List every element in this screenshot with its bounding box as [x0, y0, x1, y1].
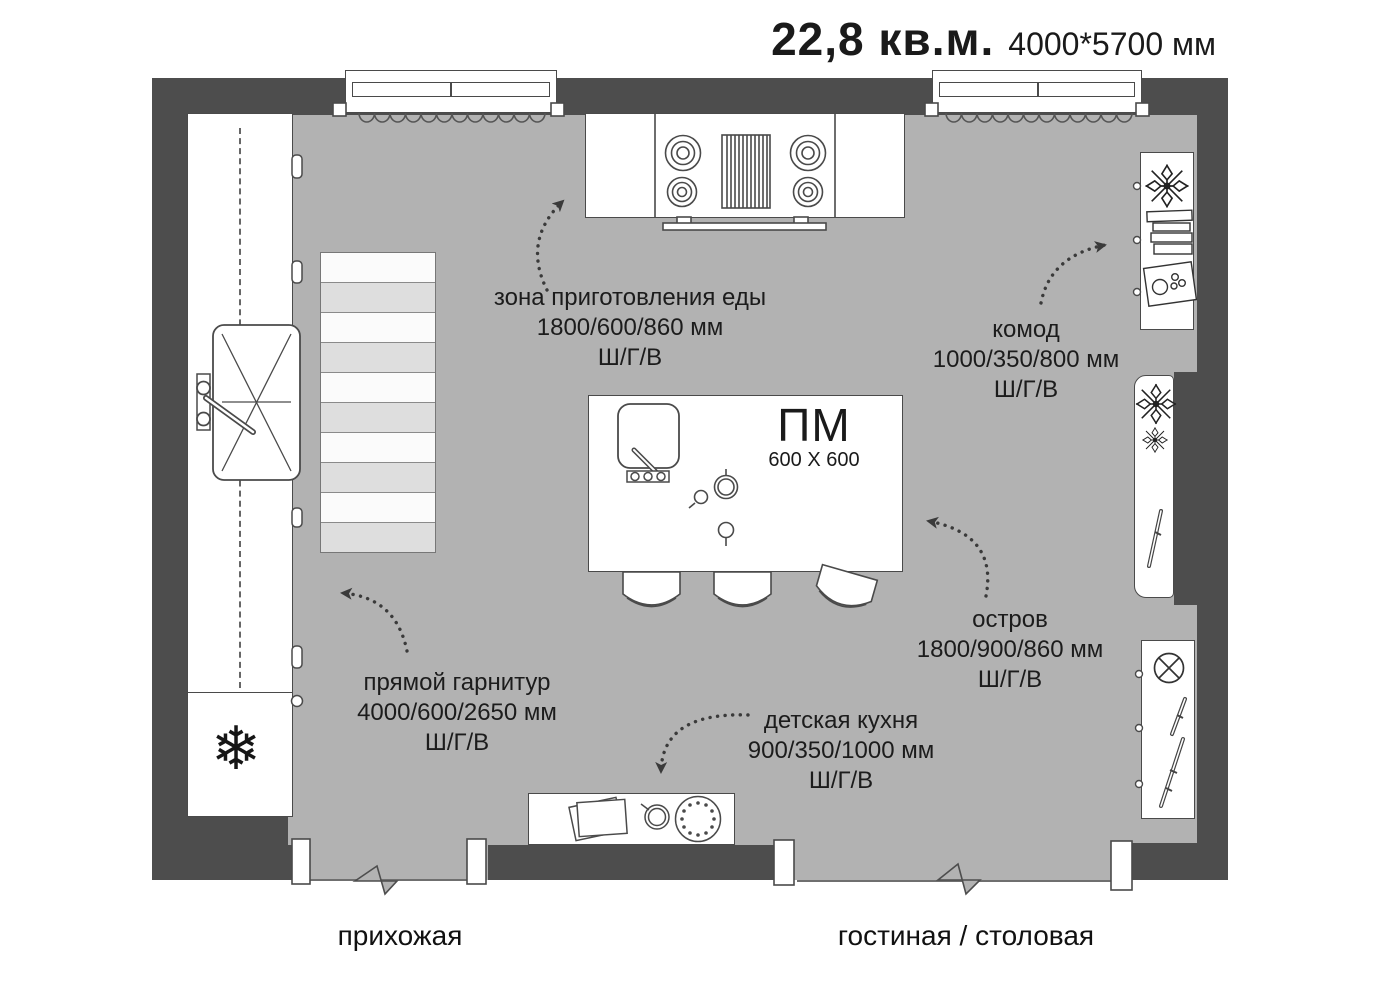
dresser-legend: Ш/Г/В — [886, 375, 1166, 405]
stool-icon — [623, 572, 680, 607]
burner-icon — [791, 136, 826, 171]
window-jamb-icon — [333, 103, 346, 116]
books-icon — [1147, 210, 1192, 254]
lamp-cross-icon — [1155, 654, 1184, 683]
oven-handle-icon — [663, 217, 826, 230]
kids-kitchen-size: 900/350/1000 мм — [691, 736, 991, 766]
island-size: 1800/900/860 мм — [865, 635, 1155, 665]
cup-icon — [689, 491, 708, 509]
kids-kitchen-name: детская кухня — [691, 706, 991, 736]
room-label-living-dining: гостиная / столовая — [766, 920, 1166, 952]
arrow-island — [928, 521, 988, 596]
opening-edges — [300, 880, 1114, 881]
label-cooking-zone: зона приготовления еды 1800/600/860 мм Ш… — [455, 283, 805, 373]
kids-kitchen-legend: Ш/Г/В — [691, 766, 991, 796]
decor-branch-icon — [1149, 511, 1161, 566]
arrow-cooking-zone — [538, 201, 563, 290]
toy-pot-icon — [641, 804, 669, 829]
dresser-details — [1134, 165, 1197, 307]
grill-icon — [722, 135, 770, 208]
pot-icon — [715, 469, 738, 499]
arrow-dresser — [1041, 245, 1105, 303]
decor-branch-icon — [1161, 739, 1183, 806]
dishwasher-abbr: ПМ — [744, 401, 884, 449]
plant-icon — [1146, 165, 1189, 208]
burner-icon — [668, 178, 697, 207]
burner-icon — [794, 178, 823, 207]
island-details — [618, 404, 738, 546]
arrow-straight-set — [342, 593, 407, 651]
window-jamb-icon — [1136, 103, 1149, 116]
decor-branch-icon — [1172, 699, 1185, 734]
stove-details — [655, 114, 835, 230]
burner-icon — [666, 136, 701, 171]
dishwasher-size: 600 X 600 — [744, 449, 884, 471]
straight-set-legend: Ш/Г/В — [307, 728, 607, 758]
window-jamb-icon — [925, 103, 938, 116]
island-sink-icon — [618, 404, 679, 468]
curtain-icons — [359, 113, 1132, 122]
island-legend: Ш/Г/В — [865, 665, 1155, 695]
label-island: остров 1800/900/860 мм Ш/Г/В — [865, 605, 1155, 695]
counter-sink-icon — [197, 325, 300, 480]
curtain-left-icon — [359, 113, 545, 122]
small-plant-icon — [1142, 427, 1167, 452]
floor-plan-canvas: ❄ — [0, 0, 1378, 1000]
plan-dimensions: 4000*5700 мм — [1008, 26, 1216, 62]
dresser-size: 1000/350/800 мм — [886, 345, 1166, 375]
plate-icon — [676, 797, 721, 842]
tray-with-cups-icon — [1144, 262, 1197, 306]
label-kids-kitchen: детская кухня 900/350/1000 мм Ш/Г/В — [691, 706, 991, 796]
island-name: остров — [865, 605, 1155, 635]
island-stools — [623, 565, 877, 614]
zigzag-living-icon — [938, 864, 980, 894]
plan-area: 22,8 кв.м. — [771, 13, 994, 65]
straight-set-name: прямой гарнитур — [307, 668, 607, 698]
console-details — [1136, 384, 1176, 566]
kids-kitchen-details — [569, 797, 721, 842]
dresser-name: комод — [886, 315, 1166, 345]
curtain-right-icon — [946, 113, 1132, 122]
window-jamb-icon — [551, 103, 564, 116]
cooking-zone-legend: Ш/Г/В — [455, 343, 805, 373]
label-straight-set: прямой гарнитур 4000/600/2650 мм Ш/Г/В — [307, 668, 607, 758]
label-dresser: комод 1000/350/800 мм Ш/Г/В — [886, 315, 1166, 405]
cooking-zone-name: зона приготовления еды — [455, 283, 805, 313]
straight-set-size: 4000/600/2650 мм — [307, 698, 607, 728]
dishwasher-tag: ПМ 600 X 600 — [744, 401, 884, 471]
ladle-icon — [719, 523, 734, 547]
cooking-zone-size: 1800/600/860 мм — [455, 313, 805, 343]
plan-graphics — [0, 0, 1378, 1000]
dresser-handles — [1134, 183, 1141, 296]
stool-icon — [714, 572, 771, 607]
tray-icon — [577, 799, 627, 836]
plan-title: 22,8 кв.м.4000*5700 мм — [700, 12, 1216, 66]
room-label-hallway: прихожая — [280, 920, 520, 952]
